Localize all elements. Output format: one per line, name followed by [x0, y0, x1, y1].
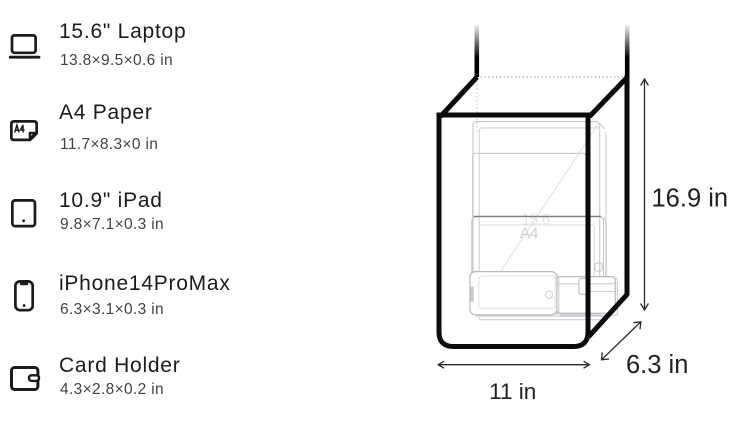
svg-text:6.3 in: 6.3 in: [626, 351, 688, 379]
svg-text:A4: A4: [520, 226, 539, 243]
svg-text:11 in: 11 in: [489, 379, 536, 404]
svg-text:16.9 in: 16.9 in: [652, 185, 729, 213]
